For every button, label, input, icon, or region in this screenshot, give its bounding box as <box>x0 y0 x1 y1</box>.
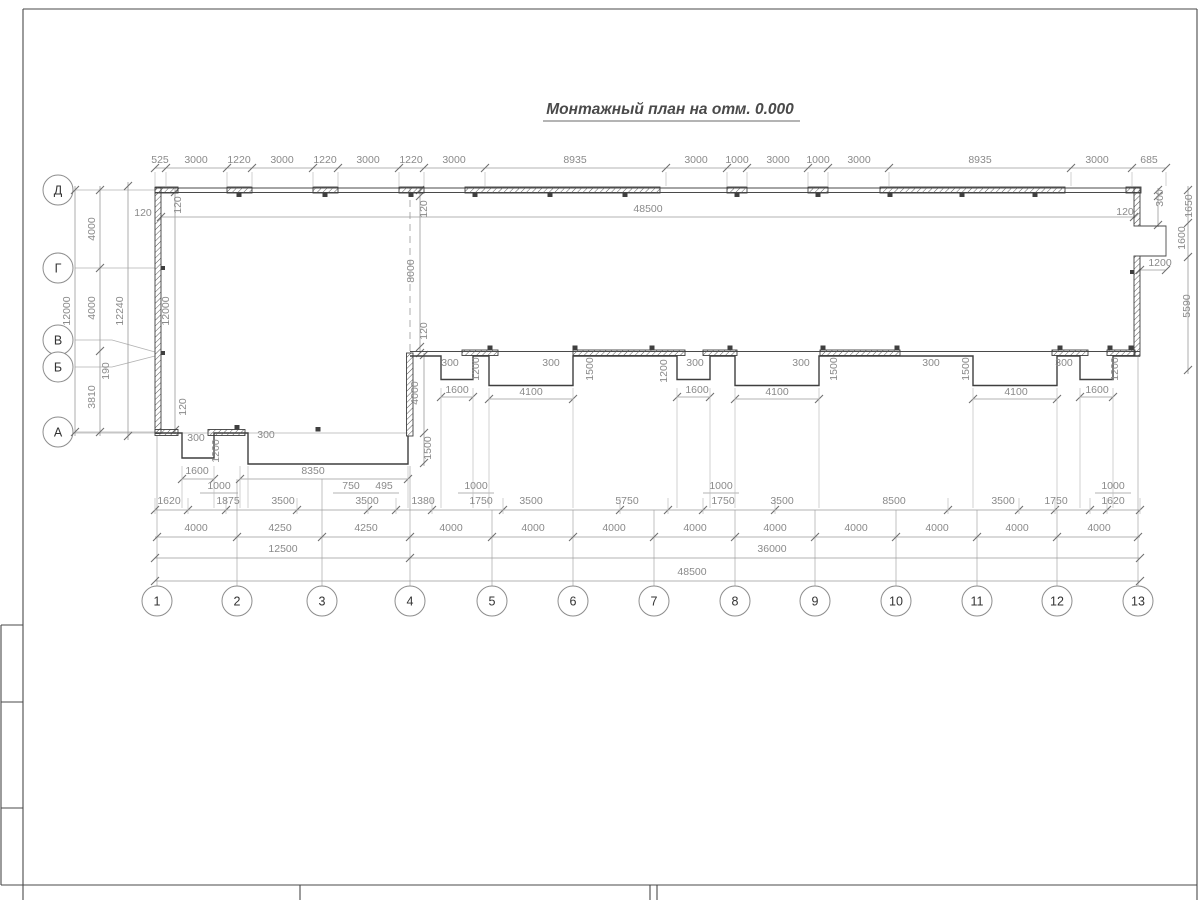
dim-label: 5750 <box>615 495 639 507</box>
axis-bubble-label: Г <box>55 262 62 276</box>
col-axis-bubble-12: 12 <box>1042 586 1072 616</box>
dimension-labels: 5253000122030001220300012203000893530001… <box>61 154 1195 578</box>
dim-label: 1000 <box>1101 480 1125 492</box>
dim-label: 300 <box>441 357 459 369</box>
dim-label: 4000 <box>86 296 98 320</box>
dim-label: 1620 <box>1101 495 1125 507</box>
row-axis-bubble-Б: Б <box>43 352 73 382</box>
dim-label: 3000 <box>270 154 294 166</box>
axis-bubble-label: 5 <box>489 595 496 609</box>
col-axis-bubble-1: 1 <box>142 586 172 616</box>
dim-label: 5590 <box>1181 294 1193 318</box>
dim-label: 1600 <box>1085 384 1109 396</box>
axis-bubble-label: Б <box>54 361 62 375</box>
dim-label: 4000 <box>1005 522 1029 534</box>
dim-label: 12000 <box>160 296 172 325</box>
axis-bubble-label: 1 <box>154 595 161 609</box>
axis-bubble-label: В <box>54 334 62 348</box>
row-axis-bubble-В: В <box>43 325 73 355</box>
dim-label: 1500 <box>960 357 972 381</box>
dim-label: 3000 <box>684 154 708 166</box>
dim-label: 120 <box>418 322 430 340</box>
dim-label: 48500 <box>677 566 706 578</box>
dim-label: 300 <box>922 357 940 369</box>
dim-label: 8000 <box>405 259 417 283</box>
dim-label: 1750 <box>1044 495 1068 507</box>
dim-label: 1600 <box>685 384 709 396</box>
dim-label: 4000 <box>521 522 545 534</box>
row-axis-bubble-А: А <box>43 417 73 447</box>
dim-label: 4000 <box>86 217 98 241</box>
col-axis-bubble-9: 9 <box>800 586 830 616</box>
dim-label: 4000 <box>844 522 868 534</box>
dim-label: 4000 <box>409 381 421 405</box>
dim-label: 4100 <box>1004 386 1028 398</box>
dim-label: 1000 <box>806 154 830 166</box>
dim-label: 36000 <box>757 543 786 555</box>
dim-label: 3000 <box>1085 154 1109 166</box>
dim-label: 12240 <box>114 296 126 325</box>
row-axis-bubble-Г: Г <box>43 253 73 283</box>
dim-label: 8350 <box>301 465 325 477</box>
dim-label: 120 <box>1116 206 1134 218</box>
dim-label: 1000 <box>207 480 231 492</box>
dim-label: 1500 <box>828 357 840 381</box>
dim-label: 4000 <box>184 522 208 534</box>
dim-label: 1600 <box>445 384 469 396</box>
right-wall-notch <box>1140 226 1166 256</box>
dim-label: 4000 <box>439 522 463 534</box>
axis-grid-lines: ДГВБА12345678910111213 <box>43 175 1153 616</box>
axis-bubble-label: Д <box>54 184 63 198</box>
dim-label: 3500 <box>991 495 1015 507</box>
right-wall-upper <box>1134 188 1140 226</box>
dim-label: 1220 <box>227 154 251 166</box>
axis-bubble-label: 4 <box>407 595 414 609</box>
drawing-title: Монтажный план на отм. 0.000 <box>546 101 794 118</box>
col-axis-bubble-3: 3 <box>307 586 337 616</box>
dim-label: 12500 <box>268 543 297 555</box>
dim-label: 8500 <box>882 495 906 507</box>
dim-label: 1620 <box>157 495 181 507</box>
axis-bubble-label: А <box>54 426 63 440</box>
dim-label: 3810 <box>86 385 98 409</box>
dim-label: 1500 <box>422 436 434 460</box>
col-axis-bubble-6: 6 <box>558 586 588 616</box>
dim-label: 525 <box>151 154 169 166</box>
dim-label: 1875 <box>216 495 240 507</box>
dim-label: 1200 <box>1148 257 1172 269</box>
col-axis-bubble-11: 11 <box>962 586 992 616</box>
dim-label: 1000 <box>464 480 488 492</box>
dim-label: 685 <box>1140 154 1158 166</box>
row-axis-bubble-Д: Д <box>43 175 73 205</box>
dim-label: 190 <box>100 362 112 380</box>
dim-label: 1200 <box>470 357 482 381</box>
col-axis-bubble-8: 8 <box>720 586 750 616</box>
dim-label: 1220 <box>399 154 423 166</box>
dim-label: 3500 <box>355 495 379 507</box>
dim-label: 1220 <box>313 154 337 166</box>
dim-label: 3000 <box>442 154 466 166</box>
dim-label: 300 <box>1055 357 1073 369</box>
dim-label: 48500 <box>633 203 662 215</box>
dim-label: 300 <box>542 357 560 369</box>
dim-label: 300 <box>1154 189 1166 207</box>
dim-label: 1750 <box>469 495 493 507</box>
axis-bubble-label: 3 <box>319 595 326 609</box>
axis-bubble-label: 11 <box>971 595 984 609</box>
axis-bubble-label: 8 <box>732 595 739 609</box>
dim-label: 300 <box>257 429 275 441</box>
dim-label: 4000 <box>925 522 949 534</box>
dim-label: 120 <box>418 200 430 218</box>
dim-label: 4100 <box>765 386 789 398</box>
dim-label: 1000 <box>709 480 733 492</box>
dim-label: 3000 <box>847 154 871 166</box>
axis-bubble-label: 6 <box>570 595 577 609</box>
dim-label: 1200 <box>210 439 222 463</box>
dim-label: 1650 <box>1183 194 1195 218</box>
axis-bubble-label: 12 <box>1050 595 1064 609</box>
col-axis-bubble-10: 10 <box>881 586 911 616</box>
col-axis-bubble-5: 5 <box>477 586 507 616</box>
axis-bubble-label: 7 <box>651 595 658 609</box>
mounting-plates <box>155 187 1141 436</box>
axis-bubble-label: 13 <box>1131 595 1145 609</box>
dim-label: 3500 <box>770 495 794 507</box>
dim-label: 4250 <box>268 522 292 534</box>
dim-label: 3000 <box>356 154 380 166</box>
dim-label: 1000 <box>725 154 749 166</box>
dim-label: 3500 <box>271 495 295 507</box>
dim-label: 4000 <box>602 522 626 534</box>
drawing-sheet: ДГВБА12345678910111213 Монтажный план на… <box>0 0 1200 900</box>
dim-label: 120 <box>177 398 189 416</box>
dim-label: 1500 <box>584 357 596 381</box>
walls <box>155 188 1166 465</box>
dim-label: 8935 <box>968 154 992 166</box>
col-axis-bubble-2: 2 <box>222 586 252 616</box>
dim-label: 12000 <box>61 296 73 325</box>
axis-bubble-label: 10 <box>889 595 903 609</box>
row-b-wall <box>410 356 1140 386</box>
floor-plan-canvas: ДГВБА12345678910111213 Монтажный план на… <box>0 0 1200 900</box>
dim-label: 300 <box>187 432 205 444</box>
sheet-frame <box>1 9 1197 900</box>
dim-label: 4000 <box>763 522 787 534</box>
dim-label: 750 <box>342 480 360 492</box>
dim-label: 120 <box>134 207 152 219</box>
dim-label: 4100 <box>519 386 543 398</box>
dim-label: 8935 <box>563 154 587 166</box>
dim-label: 4000 <box>683 522 707 534</box>
dim-label: 300 <box>686 357 704 369</box>
right-wall-lower <box>1134 256 1140 356</box>
col-axis-bubble-13: 13 <box>1123 586 1153 616</box>
dim-label: 3500 <box>519 495 543 507</box>
dim-label: 4250 <box>354 522 378 534</box>
dim-label: 3000 <box>184 154 208 166</box>
dim-label: 1600 <box>185 465 209 477</box>
dim-label: 1750 <box>711 495 735 507</box>
col-axis-bubble-4: 4 <box>395 586 425 616</box>
dim-label: 1600 <box>1176 226 1188 250</box>
dim-label: 1200 <box>658 359 670 383</box>
axis-bubble-label: 2 <box>234 595 241 609</box>
dim-label: 1200 <box>1109 357 1121 381</box>
dim-label: 4000 <box>1087 522 1111 534</box>
dim-label: 300 <box>792 357 810 369</box>
axis-bubble-label: 9 <box>812 595 819 609</box>
col-axis-bubble-7: 7 <box>639 586 669 616</box>
dim-label: 495 <box>375 480 393 492</box>
dim-label: 1380 <box>411 495 435 507</box>
dim-label: 120 <box>172 196 184 214</box>
dim-label: 3000 <box>766 154 790 166</box>
